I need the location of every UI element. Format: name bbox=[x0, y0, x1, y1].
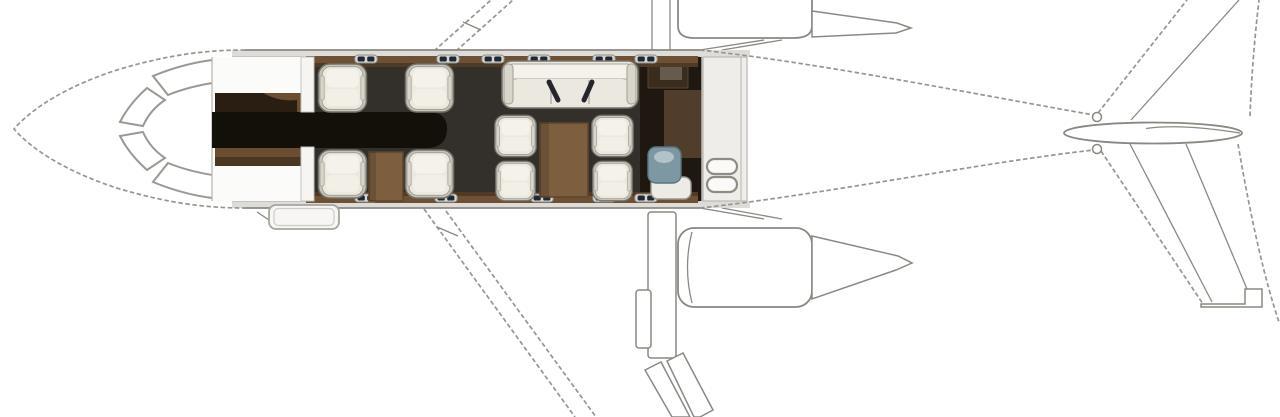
cabin-window bbox=[635, 55, 657, 63]
cabin-window bbox=[355, 55, 377, 63]
conference-seat-1 bbox=[495, 115, 536, 156]
forward-partition-top bbox=[301, 57, 314, 112]
engine-bottom-exhaust bbox=[812, 236, 912, 299]
engine-top-nacelle bbox=[678, 0, 812, 38]
cabin-interior bbox=[212, 55, 747, 203]
cabin-window bbox=[482, 55, 504, 63]
forward-partition-bottom bbox=[301, 147, 314, 201]
baggage-door-handle bbox=[707, 159, 737, 174]
club-seat-1 bbox=[319, 64, 367, 112]
horizontal-stabilizer-lower bbox=[1101, 144, 1279, 322]
engine-bottom-nacelle bbox=[678, 228, 812, 307]
baggage-compartment bbox=[703, 57, 747, 201]
engine-bottom bbox=[678, 208, 912, 307]
divan bbox=[502, 61, 638, 108]
horizontal-stabilizer-upper bbox=[1098, 0, 1259, 120]
aircraft-floorplan-figure bbox=[0, 0, 1280, 417]
conference-seat-2 bbox=[592, 115, 633, 156]
entry-door bbox=[257, 205, 339, 229]
entry-corridor bbox=[212, 112, 447, 148]
forward-table bbox=[369, 152, 403, 201]
jet-top-view bbox=[0, 0, 1280, 417]
club-seat-3 bbox=[319, 150, 367, 198]
engine-top-exhaust bbox=[812, 11, 911, 37]
fin-plan-shape bbox=[1064, 123, 1242, 144]
empennage bbox=[1098, 0, 1279, 322]
conference-table bbox=[540, 123, 588, 197]
conference-seat-4 bbox=[593, 161, 632, 200]
baggage-door-handle bbox=[707, 177, 737, 192]
conference-seat-3 bbox=[496, 161, 535, 200]
club-seat-2 bbox=[406, 64, 454, 112]
cabin-window bbox=[437, 55, 459, 63]
upper-wing bbox=[434, 0, 670, 52]
lower-wing bbox=[424, 209, 596, 417]
club-seat-4 bbox=[406, 150, 454, 198]
engine-top bbox=[678, 0, 911, 50]
